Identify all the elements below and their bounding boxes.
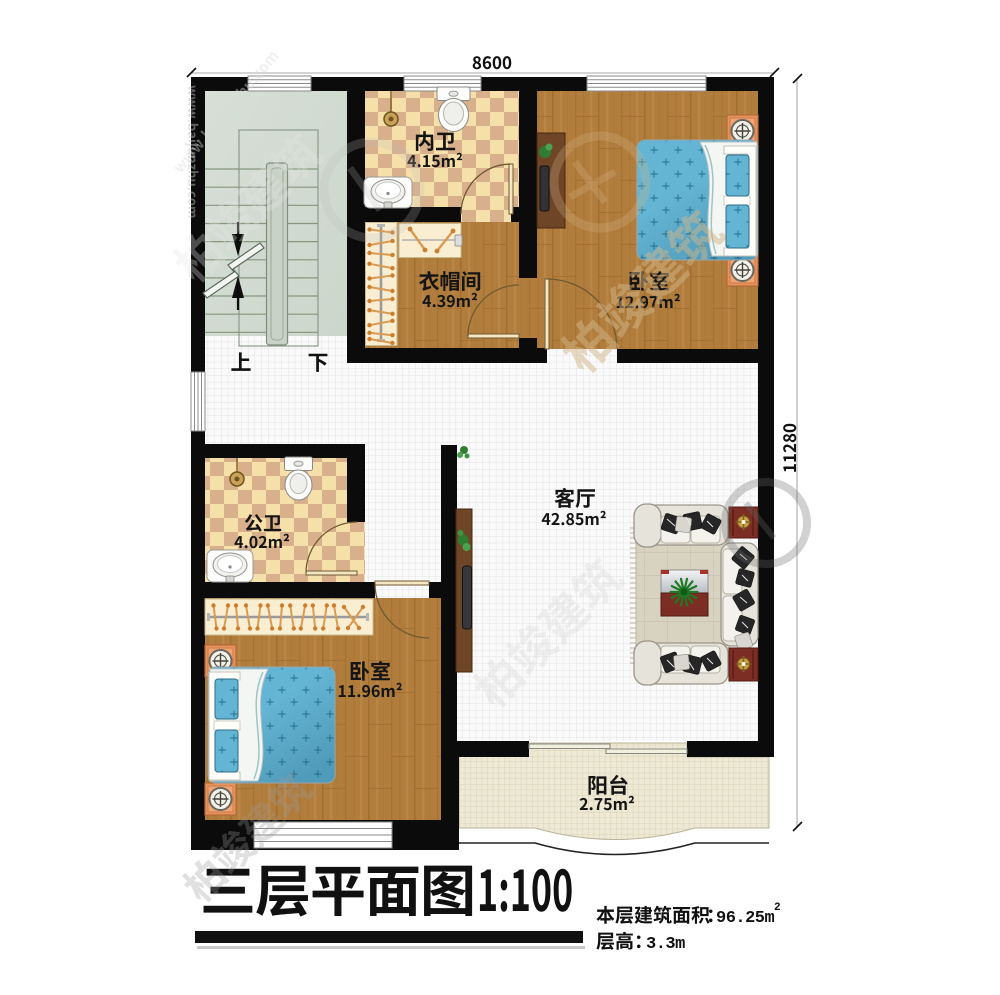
svg-text:96.25m: 96.25m xyxy=(716,909,775,928)
svg-text:2: 2 xyxy=(774,902,781,914)
svg-text:3.3m: 3.3m xyxy=(646,935,685,954)
